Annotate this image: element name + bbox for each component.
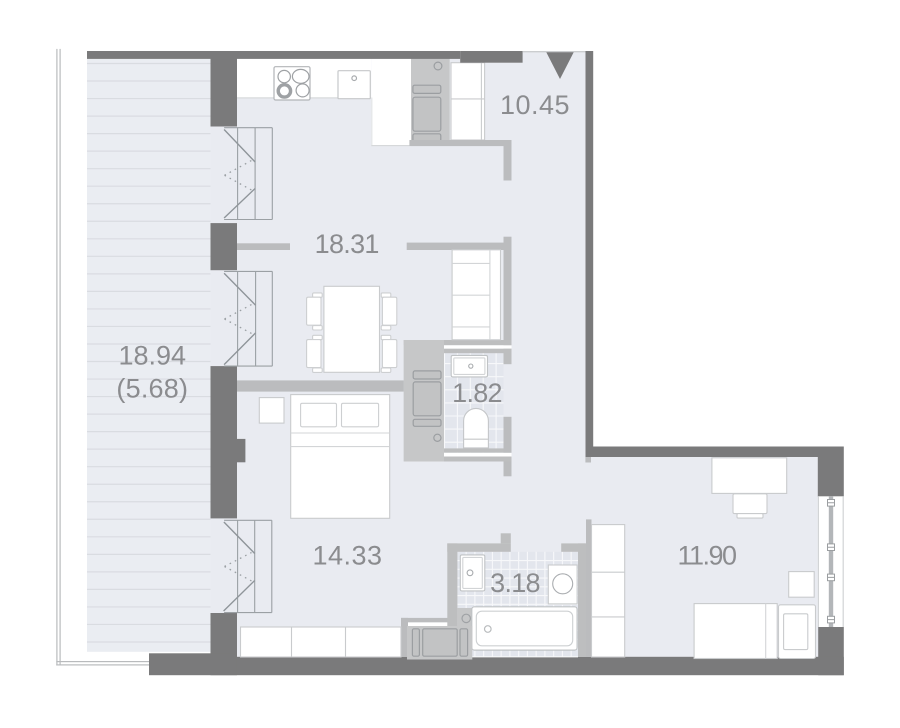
svg-text:(5.68): (5.68)	[116, 374, 188, 404]
svg-text:1.82: 1.82	[452, 378, 502, 408]
svg-text:18.31: 18.31	[315, 229, 379, 259]
svg-text:14.33: 14.33	[312, 541, 382, 571]
svg-text:11.90: 11.90	[677, 541, 736, 571]
svg-text:10.45: 10.45	[500, 90, 570, 120]
svg-text:18.94: 18.94	[119, 341, 187, 371]
svg-text:3.18: 3.18	[490, 568, 540, 598]
